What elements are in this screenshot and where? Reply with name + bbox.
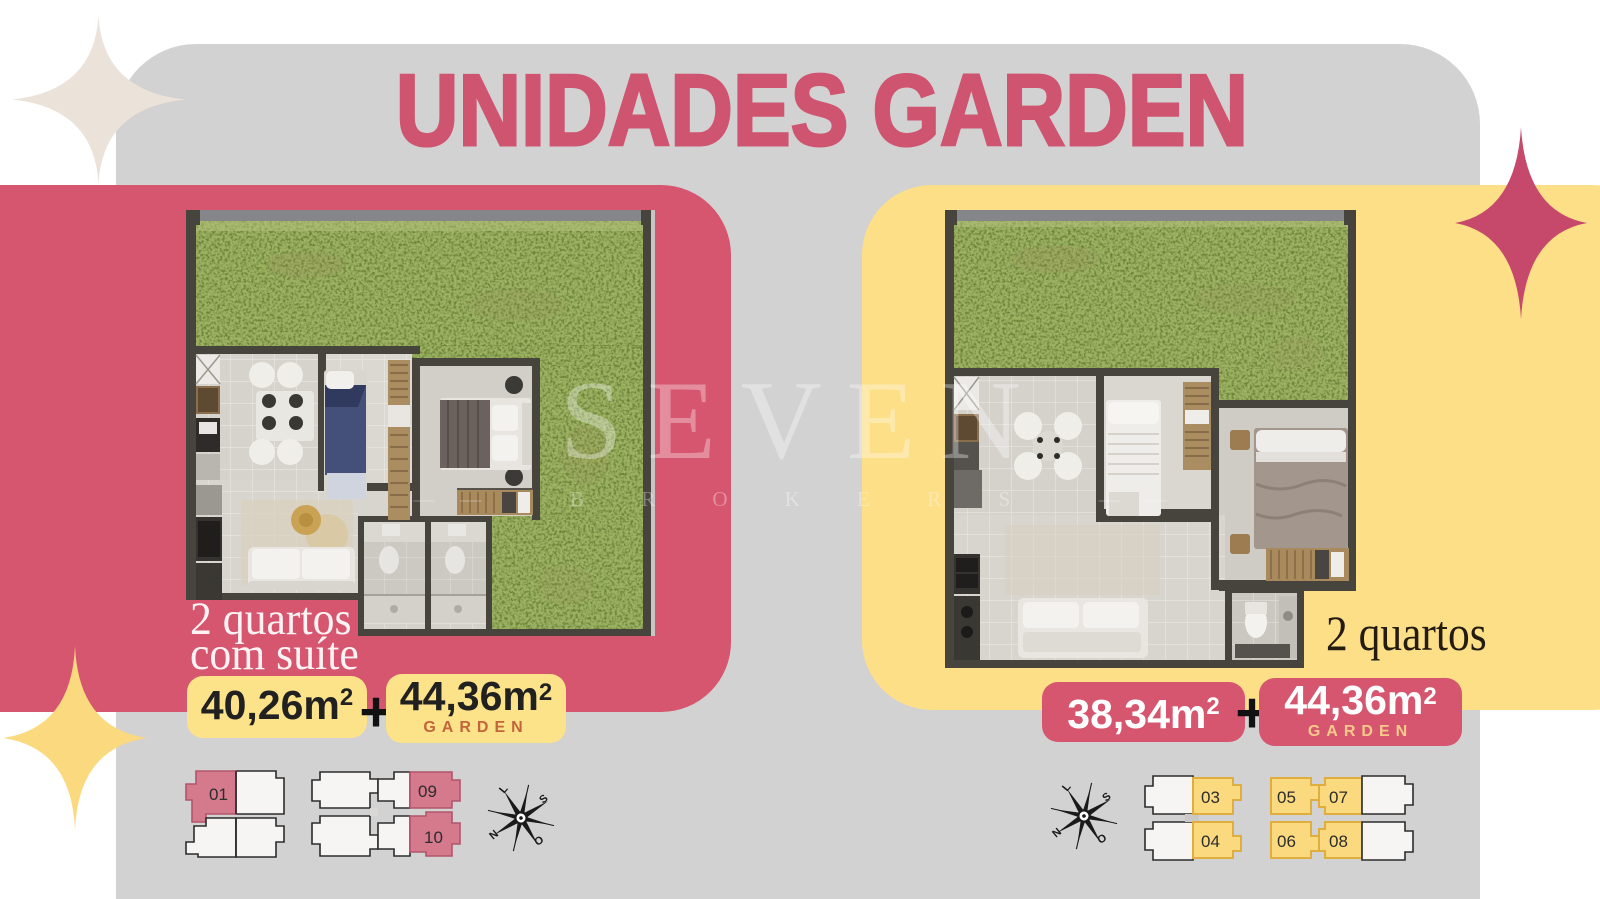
svg-text:09: 09 xyxy=(418,782,437,801)
svg-text:10: 10 xyxy=(424,828,443,847)
svg-text:01: 01 xyxy=(209,785,228,804)
svg-text:05: 05 xyxy=(1277,788,1296,807)
svg-text:03: 03 xyxy=(1201,788,1220,807)
svg-text:06: 06 xyxy=(1277,832,1296,851)
svg-text:N: N xyxy=(487,828,501,842)
svg-text:08: 08 xyxy=(1329,832,1348,851)
svg-text:S: S xyxy=(1100,790,1113,804)
svg-text:L: L xyxy=(497,784,511,796)
svg-text:N: N xyxy=(1050,826,1064,840)
svg-text:O: O xyxy=(533,834,547,849)
svg-text:S: S xyxy=(537,792,550,806)
svg-text:04: 04 xyxy=(1201,832,1220,851)
svg-text:O: O xyxy=(1096,832,1110,847)
svg-text:L: L xyxy=(1060,782,1074,794)
svg-text:07: 07 xyxy=(1329,788,1348,807)
